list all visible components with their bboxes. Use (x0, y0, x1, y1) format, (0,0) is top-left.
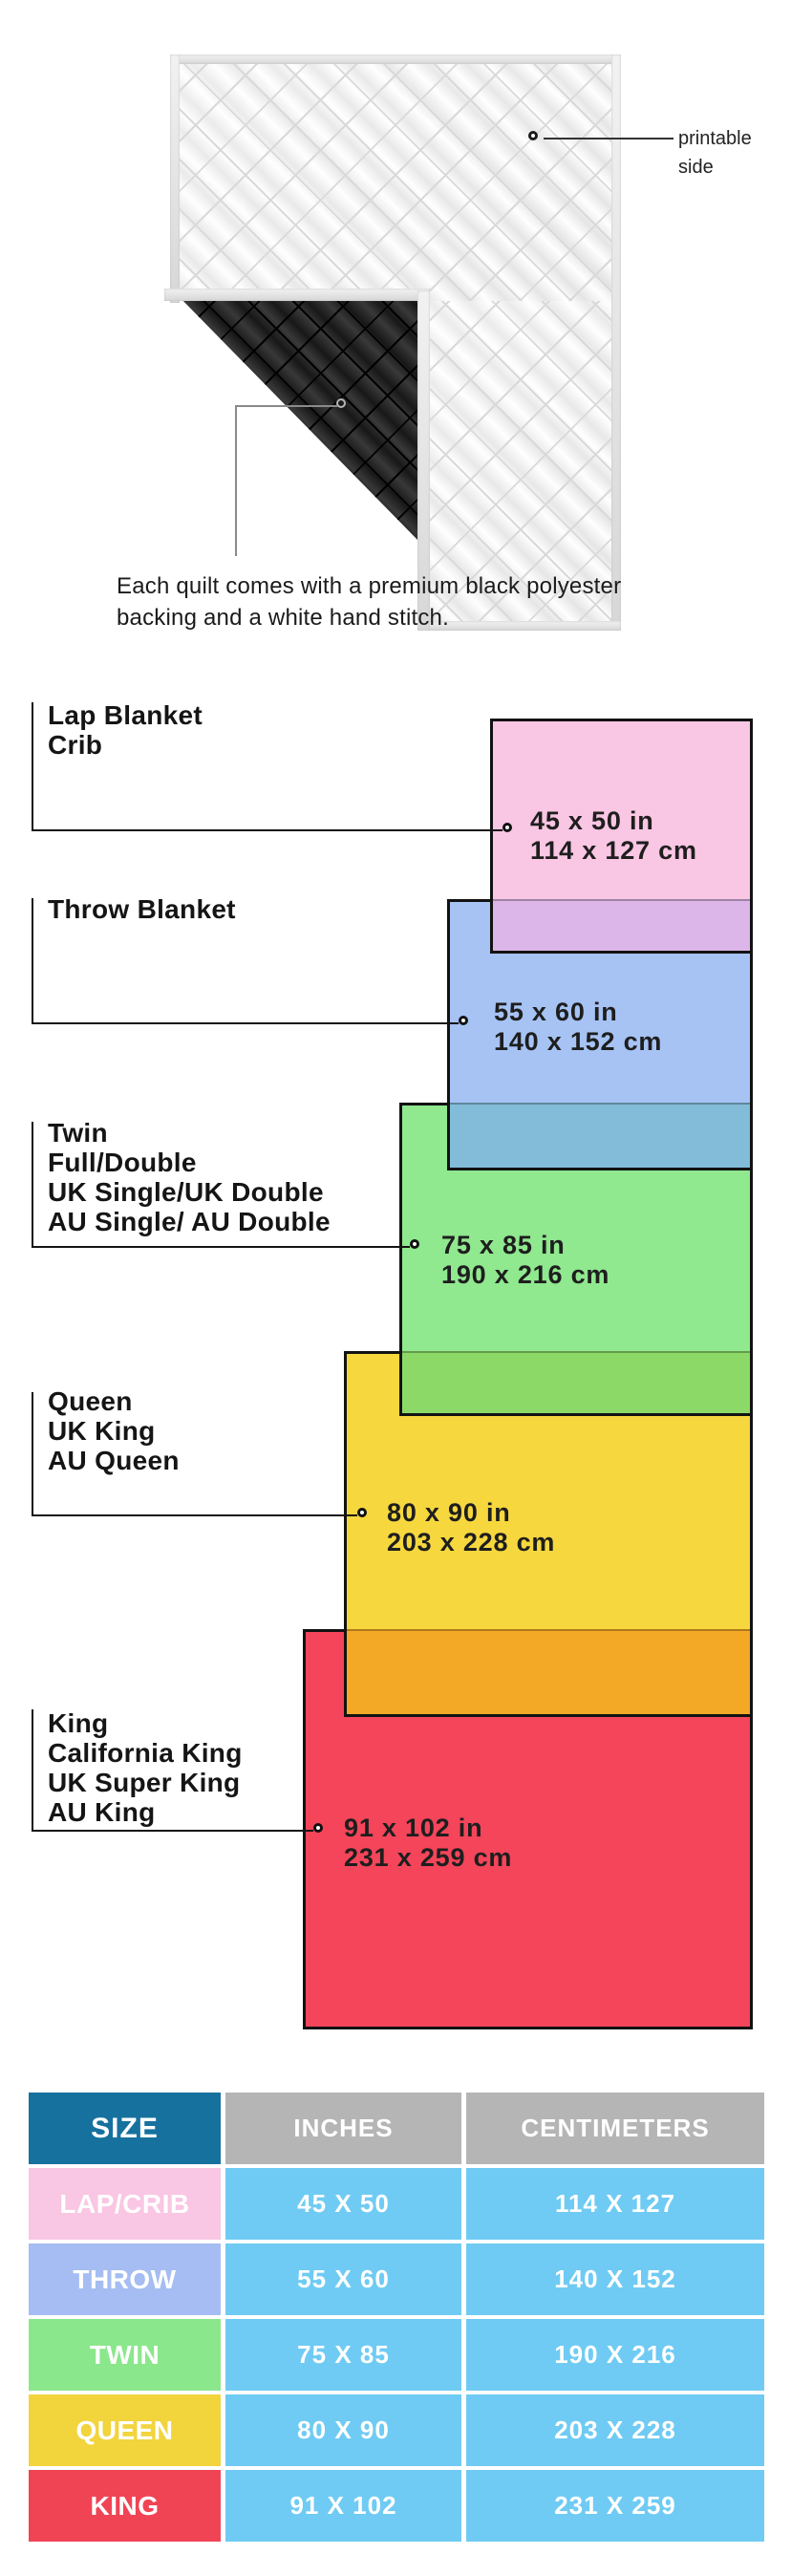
diagram-dimensions-throw-centimeters: 140 x 152 cm (494, 1027, 662, 1057)
table-header-size: SIZE (29, 2093, 221, 2164)
printable-side-label-line2: side (678, 153, 752, 182)
diagram-marker-icon-lap (502, 823, 512, 832)
diagram-leader-horizontal-lap (32, 829, 502, 831)
quilt-size-guide: printable side Each quilt comes with a p… (0, 0, 791, 2576)
diagram-overlap-twin (402, 1351, 750, 1413)
diagram-marker-icon-king (313, 1823, 323, 1833)
table-row-centimeters: 140 X 152 (466, 2243, 764, 2315)
diagram-dimensions-king: 91 x 102 in231 x 259 cm (344, 1814, 512, 1873)
diagram-overlap-lap (493, 899, 750, 951)
diagram-leader-vertical-lap (32, 702, 33, 830)
diagram-label-twin-line2: Full/Double (48, 1148, 331, 1177)
diagram-leader-vertical-king (32, 1709, 33, 1831)
diagram-label-twin-line3: UK Single/UK Double (48, 1177, 331, 1207)
backing-marker-icon (336, 398, 346, 408)
diagram-leader-horizontal-queen (32, 1514, 357, 1516)
size-table: SIZEINCHESCENTIMETERSLAP/CRIB45 X 50114 … (29, 2093, 764, 2542)
diagram-label-lap-line1: Lap Blanket (48, 700, 203, 730)
diagram-leader-horizontal-throw (32, 1022, 459, 1024)
table-row-inches: 80 X 90 (225, 2394, 461, 2466)
diagram-dimensions-lap-inches: 45 x 50 in (530, 806, 697, 836)
diagram-label-queen-line2: UK King (48, 1416, 180, 1446)
quilt-fold-binding-horizontal (164, 289, 430, 301)
table-header-inches: INCHES (225, 2093, 461, 2164)
table-row-size-lap-crib: LAP/CRIB (29, 2168, 221, 2240)
printable-side-leader-line (544, 138, 673, 140)
printable-side-label: printable side (678, 124, 752, 182)
diagram-label-king-line4: AU King (48, 1797, 243, 1827)
diagram-dimensions-twin: 75 x 85 in190 x 216 cm (441, 1231, 609, 1290)
printable-side-marker-icon (528, 131, 538, 140)
diagram-label-king: KingCalifornia KingUK Super KingAU King (48, 1708, 243, 1827)
diagram-label-lap-line2: Crib (48, 730, 203, 760)
diagram-leader-vertical-throw (32, 898, 33, 1023)
diagram-label-twin-line4: AU Single/ AU Double (48, 1207, 331, 1236)
quilt-binding-left (170, 54, 180, 303)
diagram-label-king-line2: California King (48, 1738, 243, 1768)
table-row-centimeters: 114 X 127 (466, 2168, 764, 2240)
diagram-dimensions-lap: 45 x 50 in114 x 127 cm (530, 806, 697, 866)
quilt-binding-right (611, 54, 621, 631)
diagram-marker-icon-throw (459, 1016, 468, 1025)
diagram-overlap-throw (450, 1103, 750, 1168)
diagram-dimensions-king-centimeters: 231 x 259 cm (344, 1843, 512, 1873)
diagram-label-twin: TwinFull/DoubleUK Single/UK DoubleAU Sin… (48, 1118, 331, 1236)
diagram-dimensions-king-inches: 91 x 102 in (344, 1814, 512, 1843)
diagram-dimensions-lap-centimeters: 114 x 127 cm (530, 836, 697, 866)
diagram-dimensions-queen-inches: 80 x 90 in (387, 1498, 555, 1528)
diagram-label-throw-line1: Throw Blanket (48, 894, 236, 924)
table-row-centimeters: 203 X 228 (466, 2394, 764, 2466)
diagram-overlap-queen (347, 1629, 750, 1714)
table-row-centimeters: 190 X 216 (466, 2319, 764, 2391)
diagram-label-king-line1: King (48, 1708, 243, 1738)
diagram-label-queen-line1: Queen (48, 1386, 180, 1416)
diagram-marker-icon-queen (357, 1508, 367, 1517)
diagram-leader-horizontal-twin (32, 1246, 410, 1248)
diagram-leader-vertical-twin (32, 1122, 33, 1247)
backing-leader-line-vertical (235, 405, 237, 556)
diagram-dimensions-twin-centimeters: 190 x 216 cm (441, 1260, 609, 1290)
backing-caption-line2: backing and a white hand stitch. (117, 602, 621, 633)
diagram-dimensions-throw: 55 x 60 in140 x 152 cm (494, 998, 662, 1057)
backing-caption-line1: Each quilt comes with a premium black po… (117, 570, 621, 602)
table-header-centimeters: CENTIMETERS (466, 2093, 764, 2164)
backing-caption: Each quilt comes with a premium black po… (117, 570, 621, 633)
diagram-dimensions-queen: 80 x 90 in203 x 228 cm (387, 1498, 555, 1557)
quilt-binding-top (170, 54, 621, 64)
quilt-front-top (170, 54, 621, 301)
diagram-marker-icon-twin (410, 1239, 419, 1249)
table-row-inches: 45 X 50 (225, 2168, 461, 2240)
diagram-label-twin-line1: Twin (48, 1118, 331, 1148)
diagram-leader-vertical-queen (32, 1392, 33, 1515)
quilt-black-backing-fold (177, 294, 420, 543)
diagram-dimensions-twin-inches: 75 x 85 in (441, 1231, 609, 1260)
diagram-leader-horizontal-king (32, 1830, 313, 1832)
backing-leader-line-horizontal (236, 405, 337, 407)
table-row-centimeters: 231 X 259 (466, 2470, 764, 2542)
diagram-dimensions-queen-centimeters: 203 x 228 cm (387, 1528, 555, 1557)
diagram-label-queen: QueenUK KingAU Queen (48, 1386, 180, 1475)
diagram-label-king-line3: UK Super King (48, 1768, 243, 1797)
table-row-inches: 55 X 60 (225, 2243, 461, 2315)
table-row-inches: 91 X 102 (225, 2470, 461, 2542)
table-row-inches: 75 X 85 (225, 2319, 461, 2391)
table-row-size-twin: TWIN (29, 2319, 221, 2391)
diagram-label-queen-line3: AU Queen (48, 1446, 180, 1475)
diagram-label-throw: Throw Blanket (48, 894, 236, 924)
diagram-label-lap: Lap BlanketCrib (48, 700, 203, 760)
table-row-size-queen: QUEEN (29, 2394, 221, 2466)
table-row-size-throw: THROW (29, 2243, 221, 2315)
table-row-size-king: KING (29, 2470, 221, 2542)
printable-side-label-line1: printable (678, 124, 752, 153)
diagram-dimensions-throw-inches: 55 x 60 in (494, 998, 662, 1027)
